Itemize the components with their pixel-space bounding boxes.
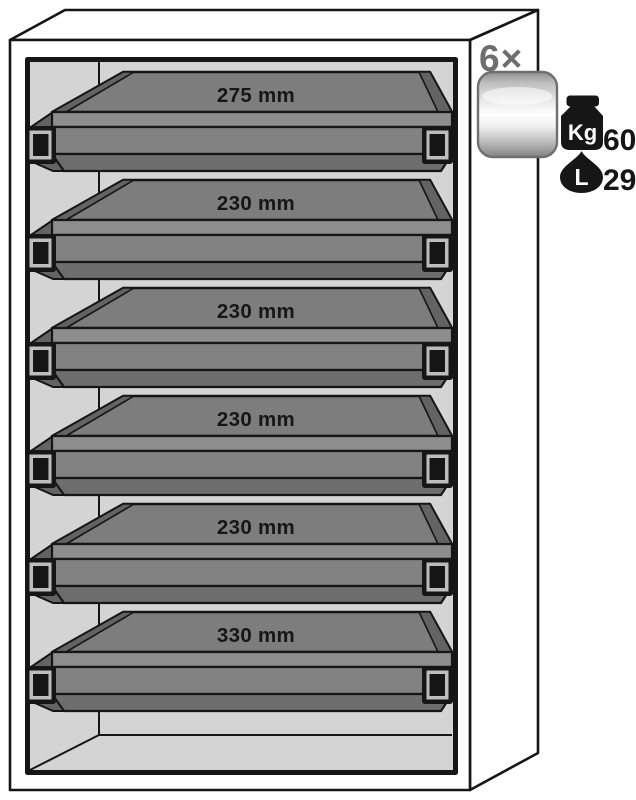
tray-front-panel (52, 127, 452, 154)
tray-dimension-label: 230 mm (217, 408, 295, 431)
tray-front-rim (52, 112, 452, 127)
tray-dimension-label: 330 mm (217, 624, 295, 647)
tray-handle-left (25, 450, 56, 488)
tray-handle-right (422, 558, 453, 596)
tray-dimension-label: 230 mm (217, 192, 295, 215)
metal-drawer-icon (478, 72, 557, 157)
tray-front-panel (52, 343, 452, 370)
tray-front-bottom-bevel (52, 586, 452, 603)
weight-capacity: Kg 60 (561, 96, 636, 158)
tray-front-panel (52, 667, 452, 694)
tray-front-rim (52, 436, 452, 451)
weight-value: 60 (603, 124, 636, 157)
tray-front-panel (52, 235, 452, 262)
drawer-icon-highlight (482, 87, 552, 105)
tray-front-rim (52, 220, 452, 235)
tray-handle-left (25, 666, 56, 704)
tray-front-bottom-bevel (52, 154, 452, 171)
tray-front-rim (52, 544, 452, 559)
tray-front-rim (52, 652, 452, 667)
volume-capacity: L 29 (560, 151, 636, 197)
tray-handle-right (422, 234, 453, 272)
volume-unit-label: L (574, 164, 588, 190)
weight-unit-label: Kg (568, 120, 597, 145)
tray-handle-right (422, 342, 453, 380)
tray-front-bottom-bevel (52, 370, 452, 387)
tray-dimension-label: 230 mm (217, 516, 295, 539)
tray-front-panel (52, 559, 452, 586)
tray-handle-right (422, 450, 453, 488)
tray-handle-right (422, 666, 453, 704)
diagram-canvas: 275 mm230 mm230 mm230 mm230 mm330 mm 6× … (0, 0, 636, 800)
tray-handle-right (422, 126, 453, 164)
tray-front-bottom-bevel (52, 262, 452, 279)
tray-front-panel (52, 451, 452, 478)
tray-front-rim (52, 328, 452, 343)
tray-handle-left (25, 558, 56, 596)
tray-handle-left (25, 234, 56, 272)
tray-dimension-label: 230 mm (217, 300, 295, 323)
volume-value: 29 (603, 164, 636, 197)
tray-handle-left (25, 126, 56, 164)
tray-dimension-label: 275 mm (217, 84, 295, 107)
tray-front-bottom-bevel (52, 478, 452, 495)
safety-cabinet-diagram: 275 mm230 mm230 mm230 mm230 mm330 mm 6× … (0, 0, 636, 800)
cabinet-top-face (10, 10, 538, 40)
tray-front-bottom-bevel (52, 694, 452, 711)
tray-handle-left (25, 342, 56, 380)
